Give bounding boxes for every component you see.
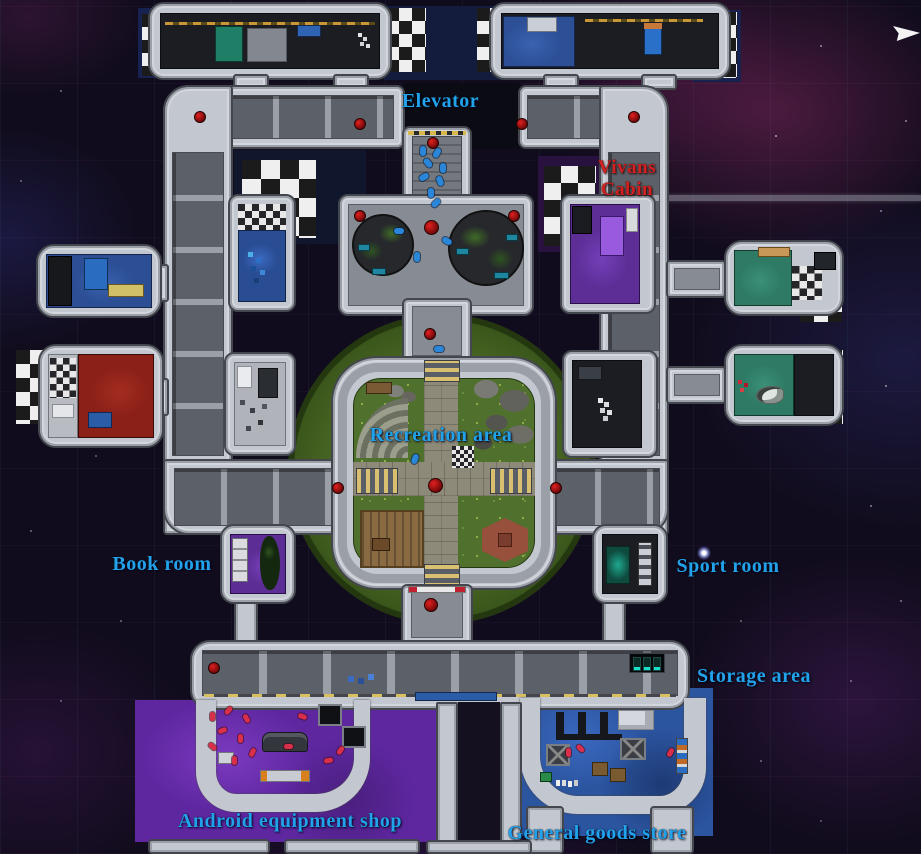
- station-map: Elevator Vivans Cabin Recreation area Bo…: [0, 0, 921, 854]
- dark-floor: [794, 354, 834, 416]
- office-papers: [598, 398, 603, 403]
- android-bot-figure[interactable]: [232, 756, 237, 765]
- corridor-panels: [548, 468, 660, 526]
- price-tags: [556, 780, 560, 786]
- vivans-bed: [600, 216, 624, 256]
- clutter-white: [358, 33, 362, 37]
- garden-ramp-east: [490, 468, 532, 494]
- goods-green: [540, 772, 552, 782]
- lamp-dot: [354, 210, 366, 222]
- lamp-dot: [332, 482, 344, 494]
- bed-green: [215, 26, 243, 62]
- android-bot-figure[interactable]: [284, 744, 293, 749]
- bench-teal: [494, 272, 509, 279]
- store-bot-figure[interactable]: [566, 748, 571, 757]
- lamp-dot: [628, 111, 640, 123]
- label-recreation-area: Recreation area: [350, 424, 532, 447]
- shelf-wood: [758, 247, 790, 257]
- lamp-dot: [424, 220, 439, 235]
- bench-teal: [372, 268, 386, 275]
- bench-teal: [506, 234, 518, 241]
- label-book-room: Book room: [106, 553, 218, 576]
- laundry-tile: [238, 204, 286, 230]
- android-bot-figure[interactable]: [210, 712, 215, 721]
- bed-blue: [84, 258, 108, 290]
- red-marks: [738, 380, 742, 384]
- storage-conveyor-blue: [415, 692, 497, 701]
- checkout-counter: [260, 770, 310, 782]
- deck-wood: [360, 510, 424, 568]
- desk-white: [527, 17, 557, 32]
- red-room-tile: [50, 358, 76, 398]
- hazard-strip: [165, 22, 375, 25]
- gear-dark: [814, 252, 836, 270]
- label-vivans-line1: Vivans: [598, 157, 656, 178]
- crew-figure[interactable]: [414, 252, 420, 262]
- hazard-strip: [585, 19, 703, 22]
- shelf-colored: [676, 738, 688, 774]
- floor-tile: [247, 28, 287, 62]
- display-digit: [643, 657, 651, 671]
- store-rack-base: [556, 734, 622, 740]
- lamp-dot: [516, 118, 528, 130]
- pillar: [234, 600, 258, 644]
- desk-blue: [297, 25, 321, 37]
- display-digit: [653, 657, 661, 671]
- closet-dark: [48, 256, 72, 306]
- room-tile: [792, 266, 822, 300]
- plant-dark: [260, 536, 280, 590]
- bed-blue: [644, 25, 662, 55]
- clothes-clutter: [248, 252, 253, 257]
- crate-dark: [342, 726, 366, 748]
- crew-figure[interactable]: [394, 228, 404, 234]
- crew-figure[interactable]: [434, 346, 444, 352]
- stub-floor: [674, 268, 720, 290]
- lamp-dot: [424, 328, 436, 340]
- vivans-dresser: [626, 208, 638, 232]
- sign-strip: [408, 586, 466, 593]
- label-sport-room: Sport room: [670, 555, 786, 578]
- green-floor: [734, 250, 792, 306]
- vivans-closet: [572, 206, 592, 234]
- lamp-dot: [424, 598, 438, 612]
- crate-brown: [592, 762, 608, 776]
- kitchen-clutter: [240, 400, 245, 405]
- crate-dark: [318, 704, 342, 726]
- couch-yellow: [108, 284, 144, 297]
- corridor-panels: [174, 468, 334, 526]
- corridor-panels: [172, 152, 224, 456]
- laundry-water-floor: [238, 230, 286, 302]
- fridge-white: [237, 366, 252, 388]
- starfield: [0, 0, 2, 2]
- sport-mat-teal: [606, 546, 630, 584]
- label-vivans-line2: Cabin: [601, 179, 653, 200]
- corridor-gap: [458, 702, 500, 854]
- crew-figure[interactable]: [440, 163, 446, 173]
- chair-blue: [88, 412, 112, 428]
- table-white: [52, 404, 74, 418]
- hazard-strip: [408, 131, 466, 135]
- pillow-orange: [644, 23, 662, 29]
- counter-dark: [258, 368, 278, 398]
- lamp-dot: [208, 662, 220, 674]
- label-vivans-cabin: Vivans Cabin: [573, 157, 681, 201]
- bench-teal: [456, 248, 469, 255]
- table-white: [618, 710, 654, 730]
- label-general-store: General goods store: [498, 822, 696, 845]
- display-digit: [633, 657, 641, 671]
- garden-ramp-north: [424, 360, 460, 382]
- crew-figure[interactable]: [428, 188, 434, 198]
- led-display: [629, 653, 665, 673]
- store-rack: [556, 712, 622, 736]
- lamp-dot: [428, 478, 443, 493]
- dino-toy: [756, 386, 784, 404]
- deck-table: [372, 538, 390, 551]
- pillar: [602, 600, 626, 644]
- label-elevator: Elevator: [388, 90, 493, 113]
- green-floor: [734, 354, 794, 416]
- crate-brown: [610, 768, 626, 782]
- shop-counter: [262, 732, 308, 752]
- corridor-wall: [436, 702, 458, 854]
- lamp-dot: [194, 111, 206, 123]
- hull-base-block: [284, 839, 420, 854]
- label-android-shop: Android equipment shop: [170, 810, 410, 833]
- lamp-dot: [550, 482, 562, 494]
- label-storage-area: Storage area: [690, 665, 818, 688]
- gray-streak: [666, 195, 921, 201]
- bookshelf: [232, 538, 248, 582]
- crew-figure[interactable]: [420, 146, 426, 156]
- stub-floor: [674, 374, 720, 396]
- android-bot-figure[interactable]: [238, 734, 243, 743]
- pallet-crate: [620, 738, 646, 760]
- garden-ramp-west: [356, 468, 398, 494]
- lamp-dot: [354, 118, 366, 130]
- bench-wood: [366, 382, 392, 394]
- storage-panels: [202, 650, 678, 696]
- hull-base-block: [148, 839, 270, 854]
- lamp-dot: [508, 210, 520, 222]
- bench-teal: [358, 244, 370, 251]
- garden-tile: [452, 446, 474, 468]
- office-desk: [578, 366, 602, 380]
- storage-machine-blue: [348, 676, 354, 682]
- sport-equipment: [638, 542, 652, 586]
- gazebo-roof-center: [498, 533, 512, 547]
- south-shaft-floor: [411, 592, 463, 638]
- checker-decal: [386, 8, 426, 72]
